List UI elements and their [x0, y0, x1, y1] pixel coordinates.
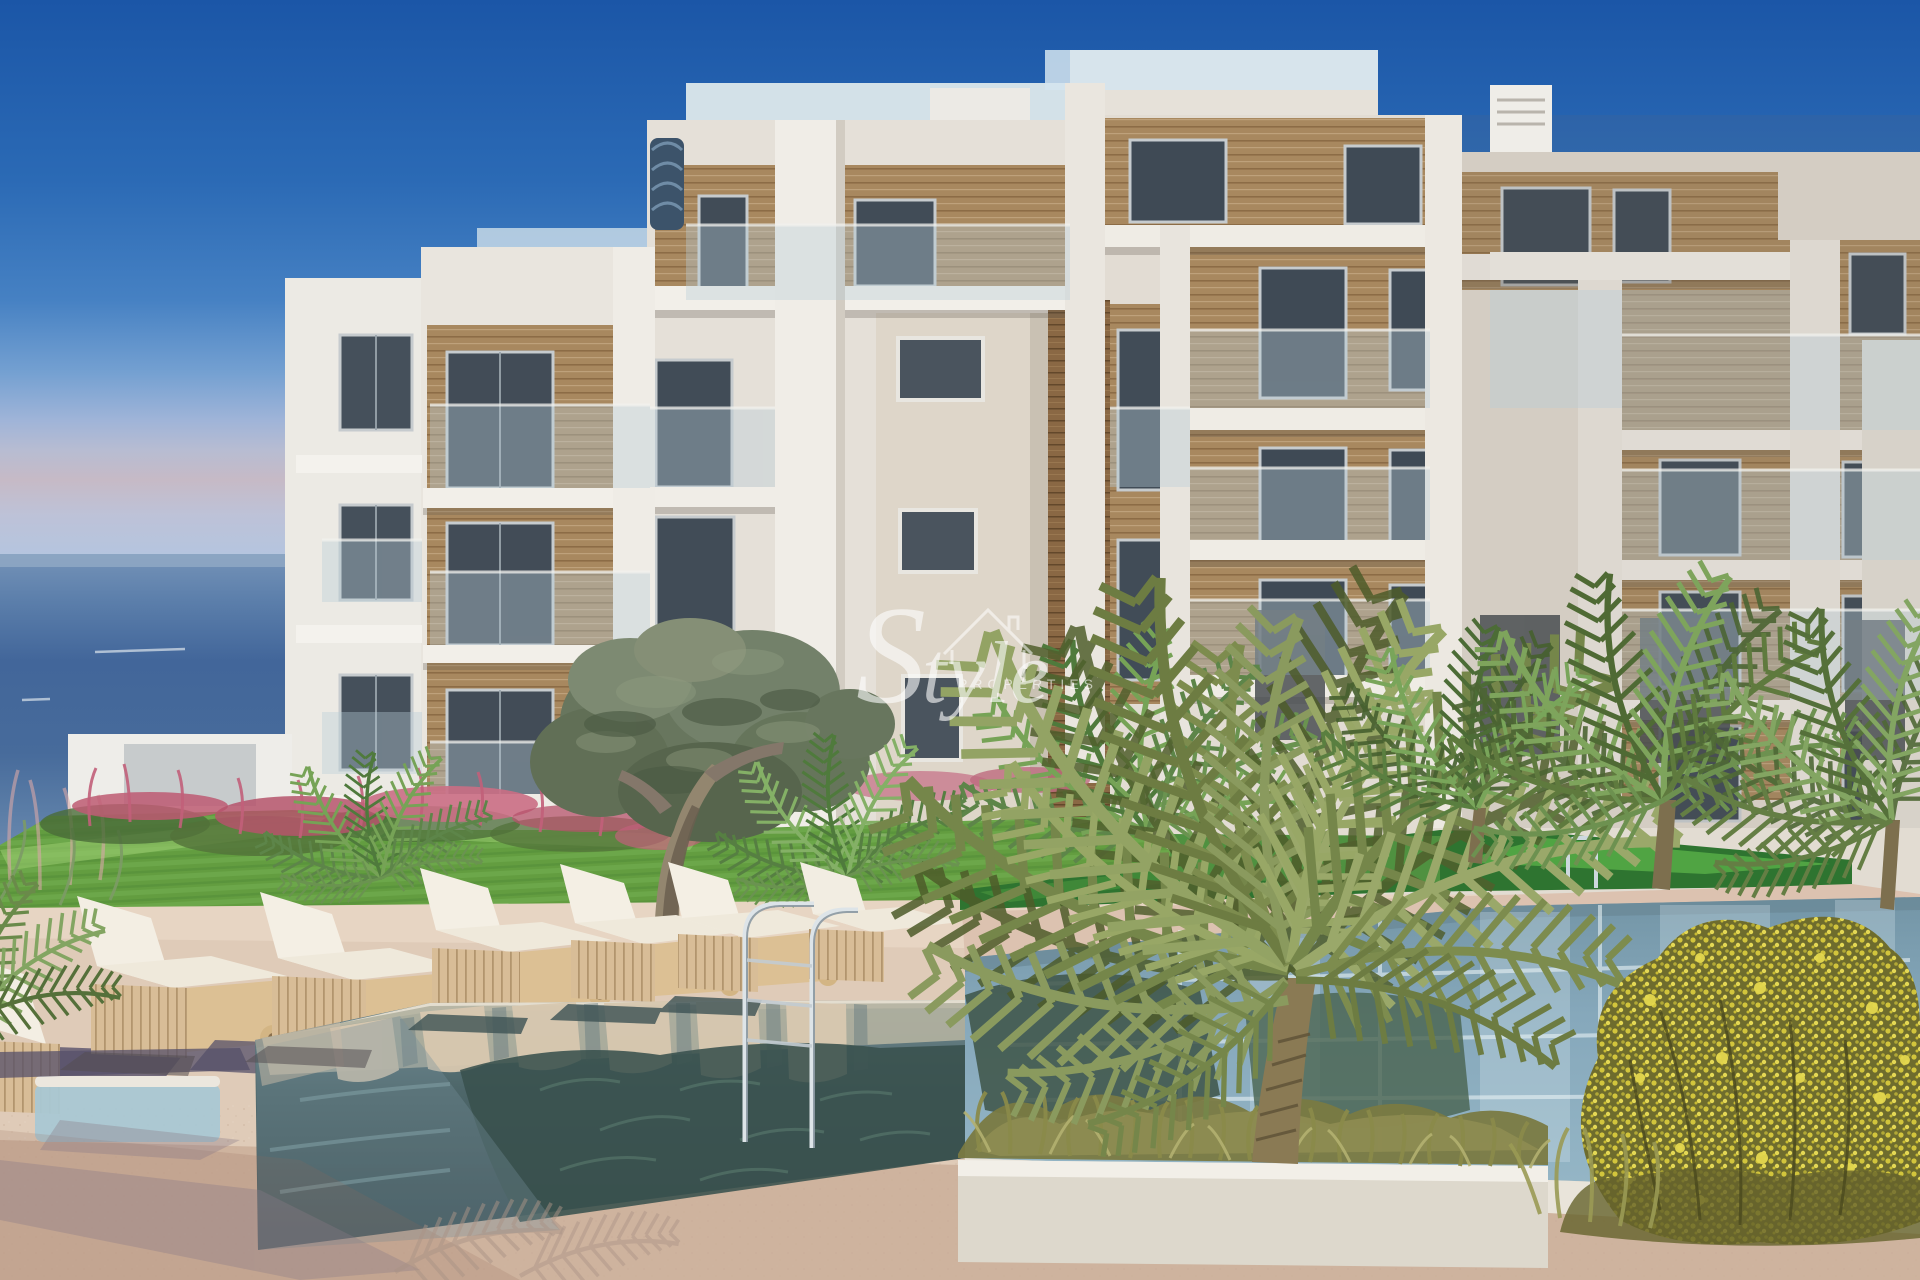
svg-text:S: S [856, 578, 926, 733]
svg-text:PROPERTIES: PROPERTIES [958, 676, 1098, 692]
svg-text:tyle: tyle [922, 625, 1049, 722]
